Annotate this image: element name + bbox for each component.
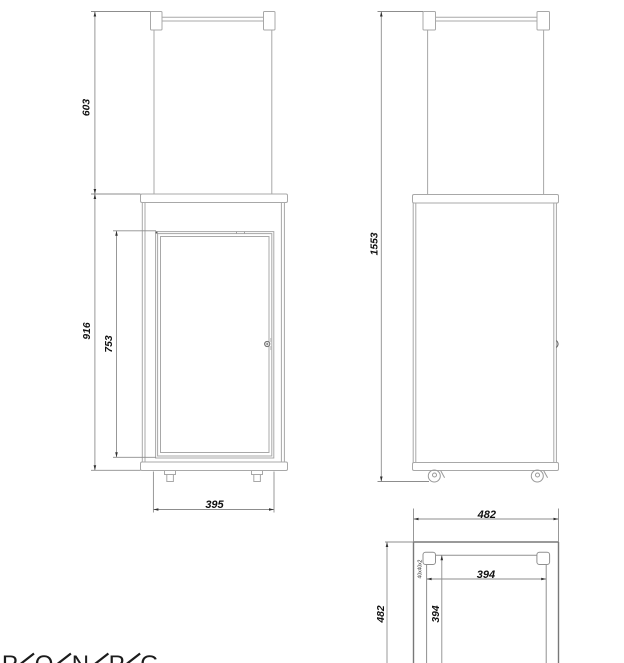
svg-text:1553: 1553 — [369, 232, 380, 255]
svg-text:394: 394 — [431, 605, 442, 622]
svg-text:40x40x2: 40x40x2 — [417, 559, 423, 578]
svg-text:482: 482 — [477, 509, 496, 521]
svg-text:N: N — [72, 651, 89, 663]
svg-text:G: G — [140, 651, 159, 663]
svg-text:603: 603 — [82, 99, 93, 116]
svg-text:P: P — [2, 651, 18, 663]
svg-text:753: 753 — [104, 335, 115, 352]
svg-text:482: 482 — [376, 605, 387, 623]
svg-text:P: P — [109, 651, 125, 663]
svg-text:394: 394 — [477, 569, 495, 581]
svg-text:916: 916 — [82, 322, 93, 339]
svg-text:395: 395 — [205, 499, 224, 511]
svg-text:O: O — [35, 651, 54, 663]
